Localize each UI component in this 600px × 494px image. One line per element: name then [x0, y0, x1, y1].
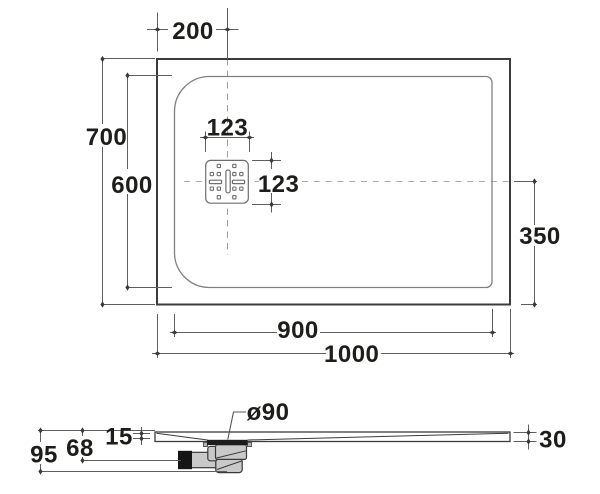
svg-text:200: 200 — [172, 18, 214, 45]
svg-text:1000: 1000 — [324, 341, 379, 368]
svg-text:95: 95 — [30, 442, 58, 469]
svg-text:700: 700 — [86, 124, 128, 151]
svg-text:600: 600 — [111, 172, 153, 199]
svg-text:ø90: ø90 — [247, 399, 290, 426]
svg-text:900: 900 — [277, 317, 319, 344]
svg-text:350: 350 — [519, 223, 561, 250]
svg-text:123: 123 — [207, 114, 249, 141]
svg-text:123: 123 — [258, 171, 300, 198]
svg-text:30: 30 — [539, 427, 567, 454]
svg-text:68: 68 — [66, 435, 94, 462]
svg-text:15: 15 — [105, 424, 133, 451]
